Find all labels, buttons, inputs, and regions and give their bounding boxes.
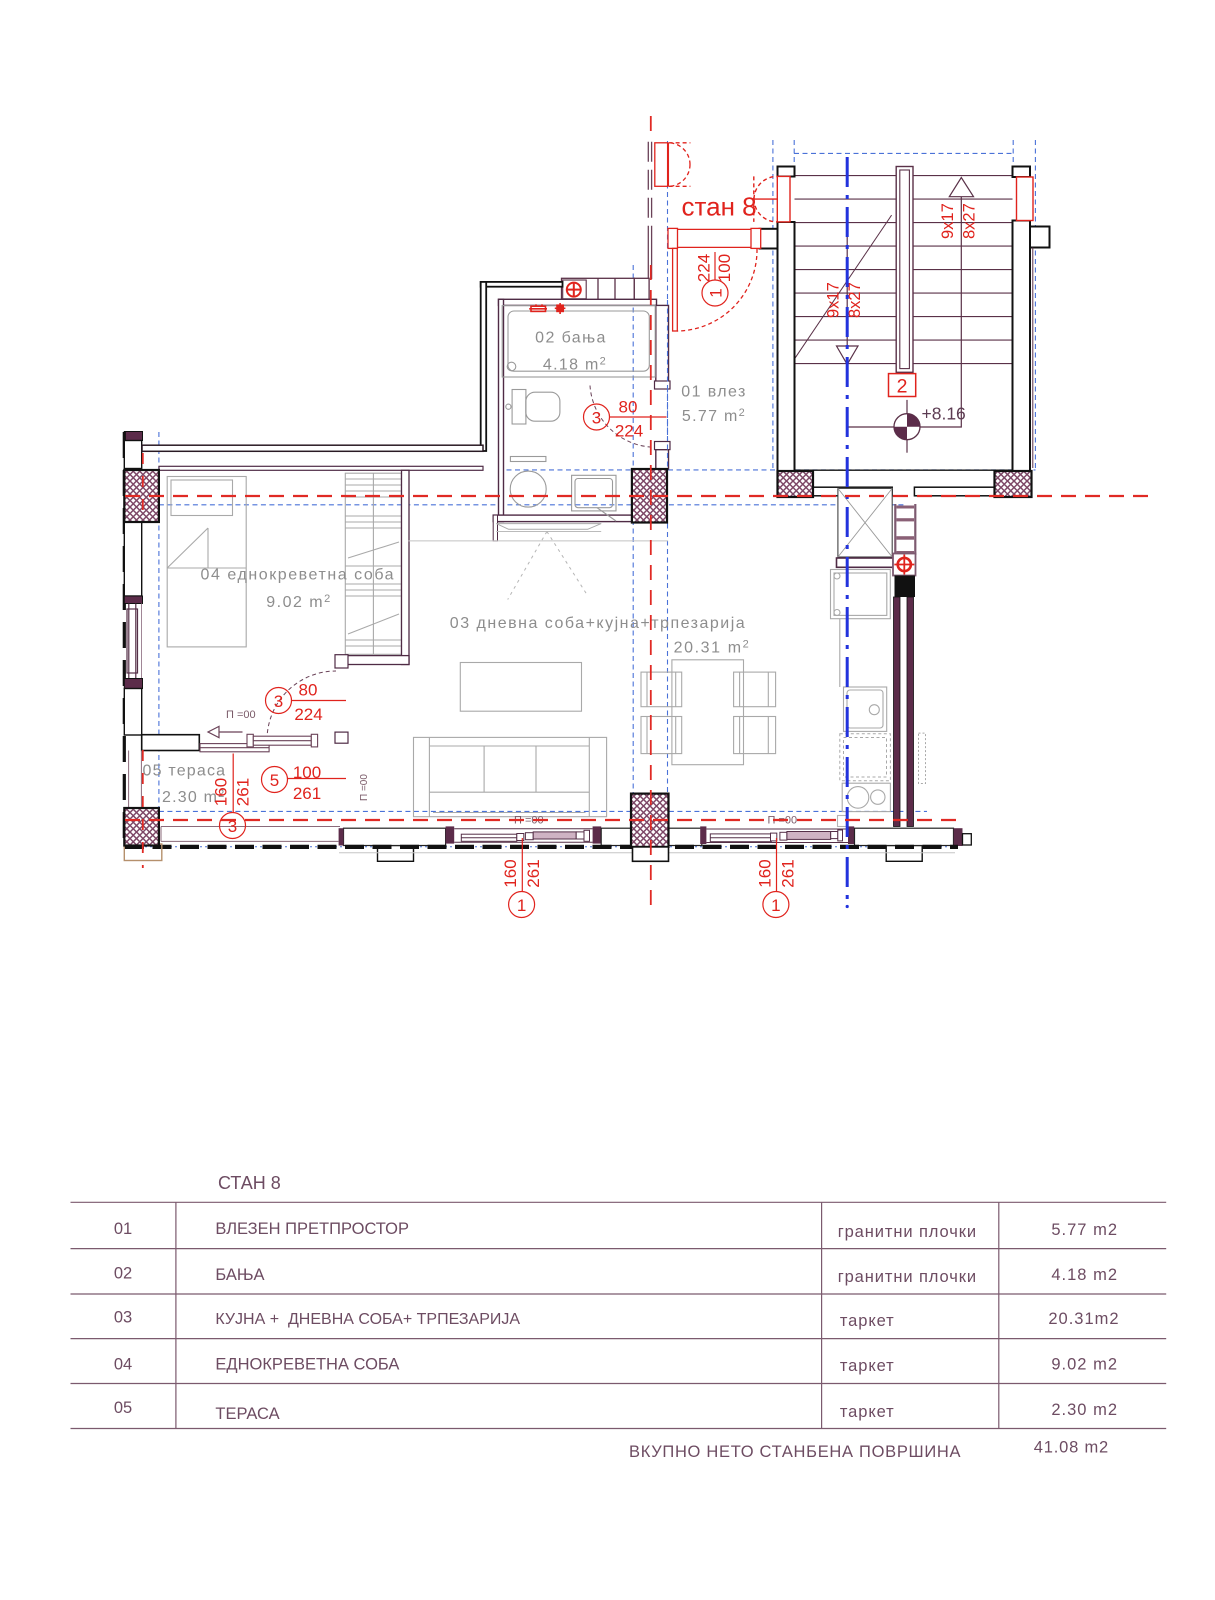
svg-text:261: 261 xyxy=(293,784,321,803)
svg-text:ВКУПНО НЕТО СТАНБЕНА ПОВРШИНА: ВКУПНО НЕТО СТАНБЕНА ПОВРШИНА xyxy=(629,1443,961,1461)
svg-text:02 бања: 02 бања xyxy=(535,330,607,347)
svg-text:5: 5 xyxy=(270,771,279,790)
svg-text:261: 261 xyxy=(234,778,253,806)
svg-text:80: 80 xyxy=(619,397,638,416)
svg-text:9.02 m2: 9.02 m2 xyxy=(266,593,332,611)
svg-text:таркет: таркет xyxy=(840,1312,895,1330)
svg-text:05 тераса: 05 тераса xyxy=(143,762,227,779)
svg-text:ТЕРАСА: ТЕРАСА xyxy=(215,1405,279,1423)
svg-text:стан 8: стан 8 xyxy=(682,192,757,222)
svg-text:1: 1 xyxy=(771,896,780,915)
svg-text:1: 1 xyxy=(707,288,726,297)
svg-text:ЕДНОКРЕВЕТНА СОБА: ЕДНОКРЕВЕТНА СОБА xyxy=(215,1355,399,1373)
svg-text:224: 224 xyxy=(294,705,322,724)
svg-text:261: 261 xyxy=(778,859,797,887)
svg-text:100: 100 xyxy=(293,763,321,782)
svg-text:160: 160 xyxy=(212,778,231,806)
svg-text:01 влез: 01 влез xyxy=(681,384,746,401)
svg-text:БАЊА: БАЊА xyxy=(215,1266,264,1284)
svg-text:04 еднокреветна соба: 04 еднокреветна соба xyxy=(201,567,396,584)
svg-text:224: 224 xyxy=(695,254,714,282)
svg-text:П =00: П =00 xyxy=(226,709,256,721)
svg-text:3: 3 xyxy=(274,692,283,711)
svg-text:+8.16: +8.16 xyxy=(922,404,966,424)
svg-text:20.31m2: 20.31m2 xyxy=(1048,1310,1119,1328)
svg-text:41.08 m2: 41.08 m2 xyxy=(1034,1438,1109,1456)
svg-text:03 дневна соба+кујна+трпезариј: 03 дневна соба+кујна+трпезарија xyxy=(450,615,746,632)
svg-text:3: 3 xyxy=(592,409,601,428)
svg-text:160: 160 xyxy=(755,859,774,887)
svg-text:03: 03 xyxy=(114,1309,132,1327)
svg-text:261: 261 xyxy=(524,859,543,887)
svg-text:5.77 m2: 5.77 m2 xyxy=(1051,1221,1118,1239)
svg-text:02: 02 xyxy=(114,1265,132,1283)
svg-text:СТАН 8: СТАН 8 xyxy=(218,1173,281,1193)
svg-text:80: 80 xyxy=(299,681,318,700)
svg-text:9.02 m2: 9.02 m2 xyxy=(1051,1355,1118,1373)
svg-text:01: 01 xyxy=(114,1220,132,1238)
svg-text:160: 160 xyxy=(501,859,520,887)
svg-text:ВЛЕЗЕН ПРЕТПРОСТОР: ВЛЕЗЕН ПРЕТПРОСТОР xyxy=(215,1220,409,1238)
svg-text:224: 224 xyxy=(615,422,643,441)
svg-text:8x27: 8x27 xyxy=(961,203,979,239)
svg-text:4.18 m2: 4.18 m2 xyxy=(543,356,607,374)
svg-text:2.30 m2: 2.30 m2 xyxy=(1051,1401,1118,1419)
svg-text:П =00: П =00 xyxy=(359,774,370,801)
svg-text:гранитни плочки: гранитни плочки xyxy=(838,1223,977,1241)
svg-text:05: 05 xyxy=(114,1399,132,1417)
svg-text:9x17: 9x17 xyxy=(939,203,957,239)
svg-text:2: 2 xyxy=(897,376,908,398)
svg-text:гранитни плочки: гранитни плочки xyxy=(838,1268,977,1286)
svg-text:таркет: таркет xyxy=(840,1403,895,1421)
svg-text:9x17: 9x17 xyxy=(825,282,843,318)
svg-text:4.18 m2: 4.18 m2 xyxy=(1051,1266,1118,1284)
svg-text:04: 04 xyxy=(114,1355,132,1373)
svg-text:5.77 m2: 5.77 m2 xyxy=(682,407,746,425)
svg-text:1: 1 xyxy=(517,896,526,915)
svg-text:таркет: таркет xyxy=(840,1357,895,1375)
svg-text:100: 100 xyxy=(715,254,734,282)
svg-text:КУЈНА + ДНЕВНА СОБА+ ТРПЕЗАРИ: КУЈНА + ДНЕВНА СОБА+ ТРПЕЗАРИЈА xyxy=(215,1311,520,1328)
svg-text:20.31 m2: 20.31 m2 xyxy=(674,639,751,657)
